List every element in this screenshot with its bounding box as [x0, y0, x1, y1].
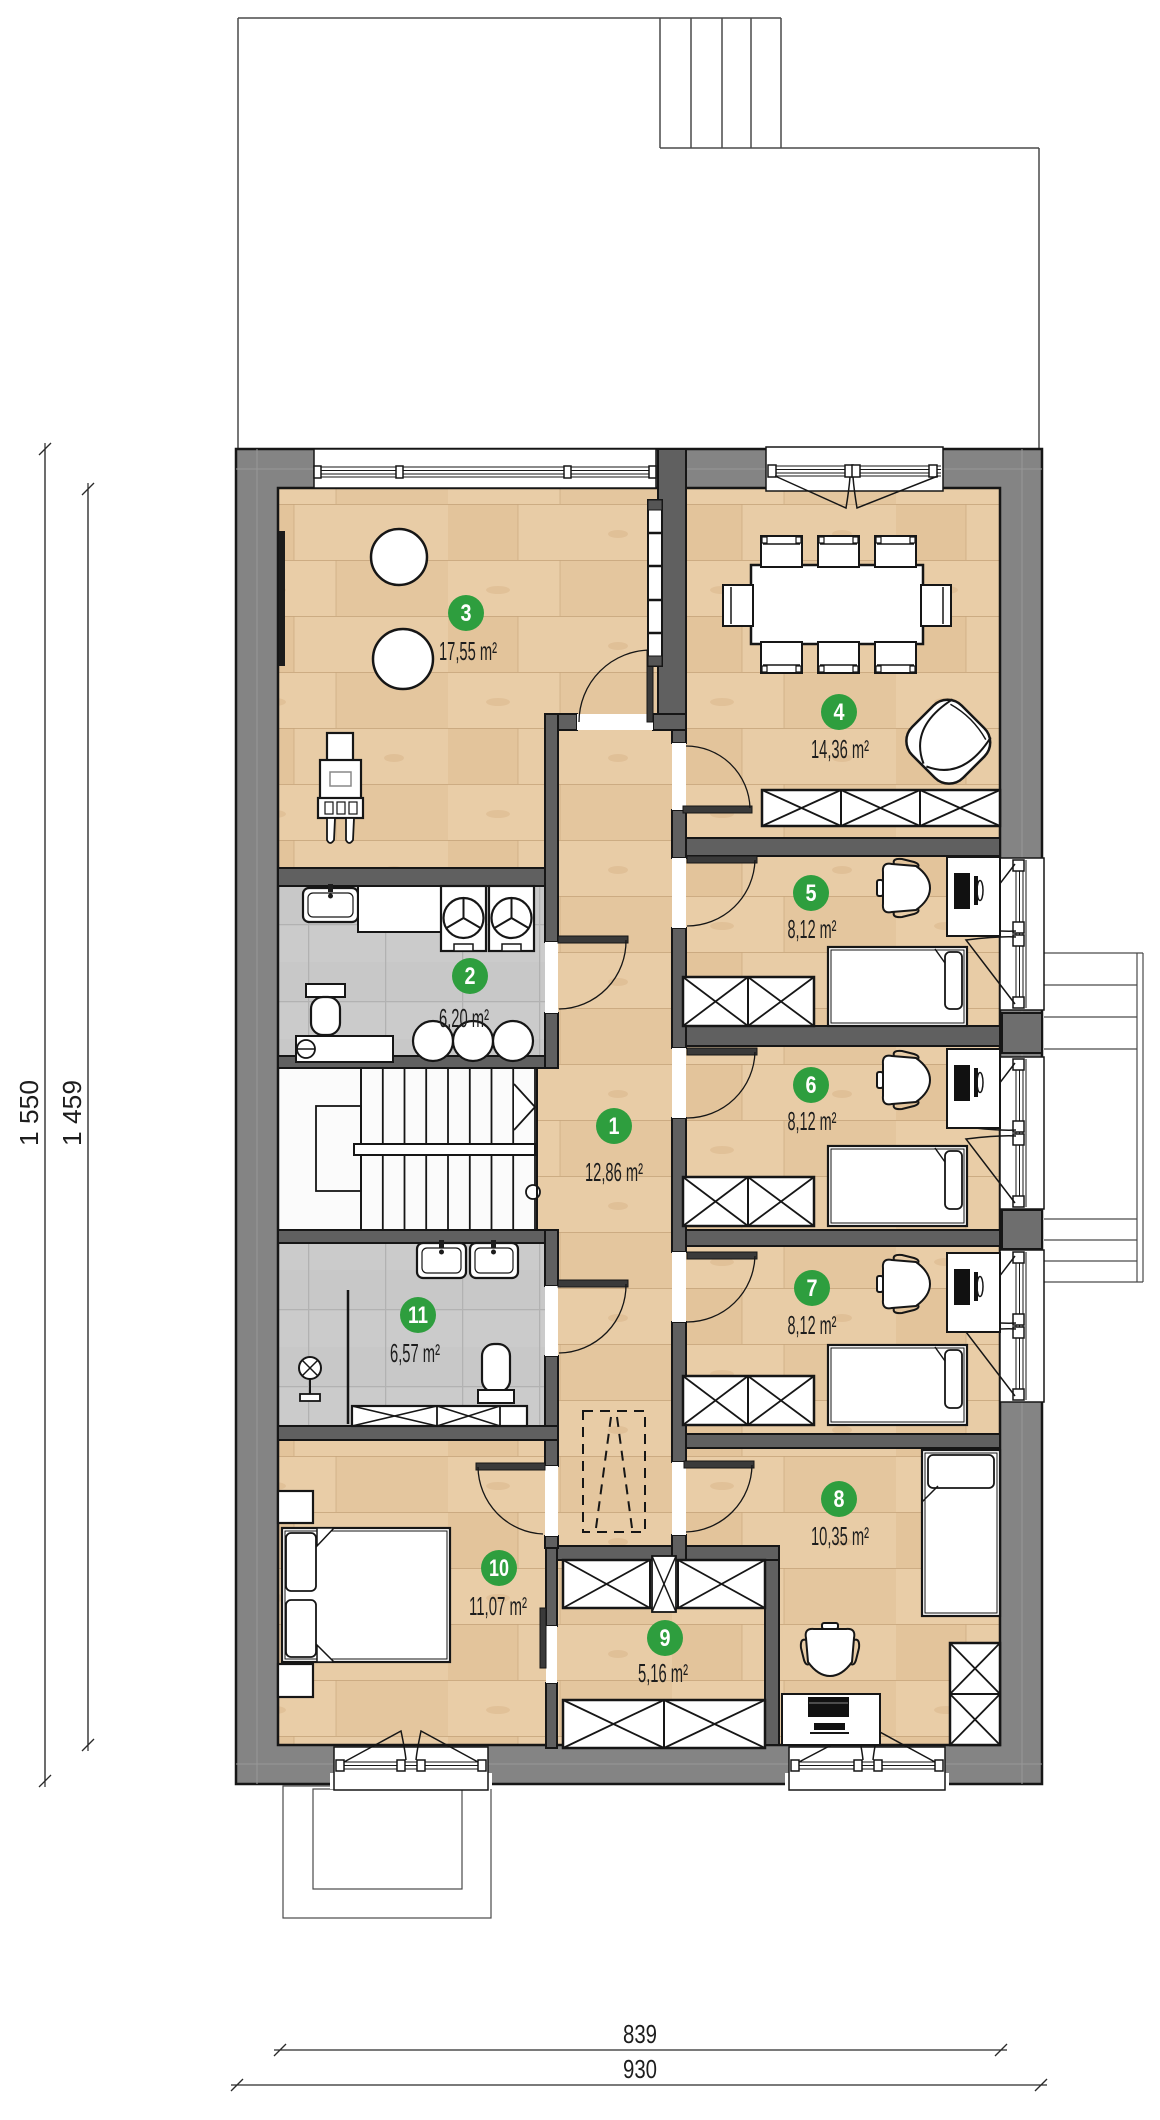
svg-text:9: 9 — [660, 1625, 671, 1652]
svg-text:930: 930 — [623, 2054, 657, 2084]
svg-text:11,07 m²: 11,07 m² — [469, 1591, 527, 1621]
svg-text:4: 4 — [834, 699, 846, 726]
svg-text:5: 5 — [806, 880, 817, 907]
svg-text:3: 3 — [461, 600, 472, 627]
svg-text:17,55 m²: 17,55 m² — [439, 636, 497, 666]
svg-text:8,12 m²: 8,12 m² — [788, 914, 837, 944]
svg-text:6,20 m²: 6,20 m² — [439, 1003, 489, 1033]
svg-text:1: 1 — [609, 1113, 620, 1140]
svg-text:14,36 m²: 14,36 m² — [811, 734, 869, 764]
svg-text:8: 8 — [834, 1486, 845, 1513]
svg-text:11: 11 — [408, 1302, 428, 1329]
svg-text:8,12 m²: 8,12 m² — [788, 1106, 837, 1136]
svg-text:12,86 m²: 12,86 m² — [585, 1157, 643, 1187]
svg-text:1 459: 1 459 — [57, 1080, 87, 1146]
svg-text:5,16 m²: 5,16 m² — [638, 1658, 688, 1688]
svg-text:839: 839 — [623, 2019, 657, 2049]
svg-text:10,35 m²: 10,35 m² — [811, 1521, 869, 1551]
svg-text:1 550: 1 550 — [14, 1080, 44, 1146]
svg-text:6,57 m²: 6,57 m² — [390, 1338, 440, 1368]
svg-text:2: 2 — [465, 963, 476, 990]
svg-text:6: 6 — [806, 1072, 817, 1099]
svg-text:10: 10 — [489, 1555, 509, 1582]
svg-text:8,12 m²: 8,12 m² — [788, 1310, 837, 1340]
svg-text:7: 7 — [807, 1275, 818, 1302]
